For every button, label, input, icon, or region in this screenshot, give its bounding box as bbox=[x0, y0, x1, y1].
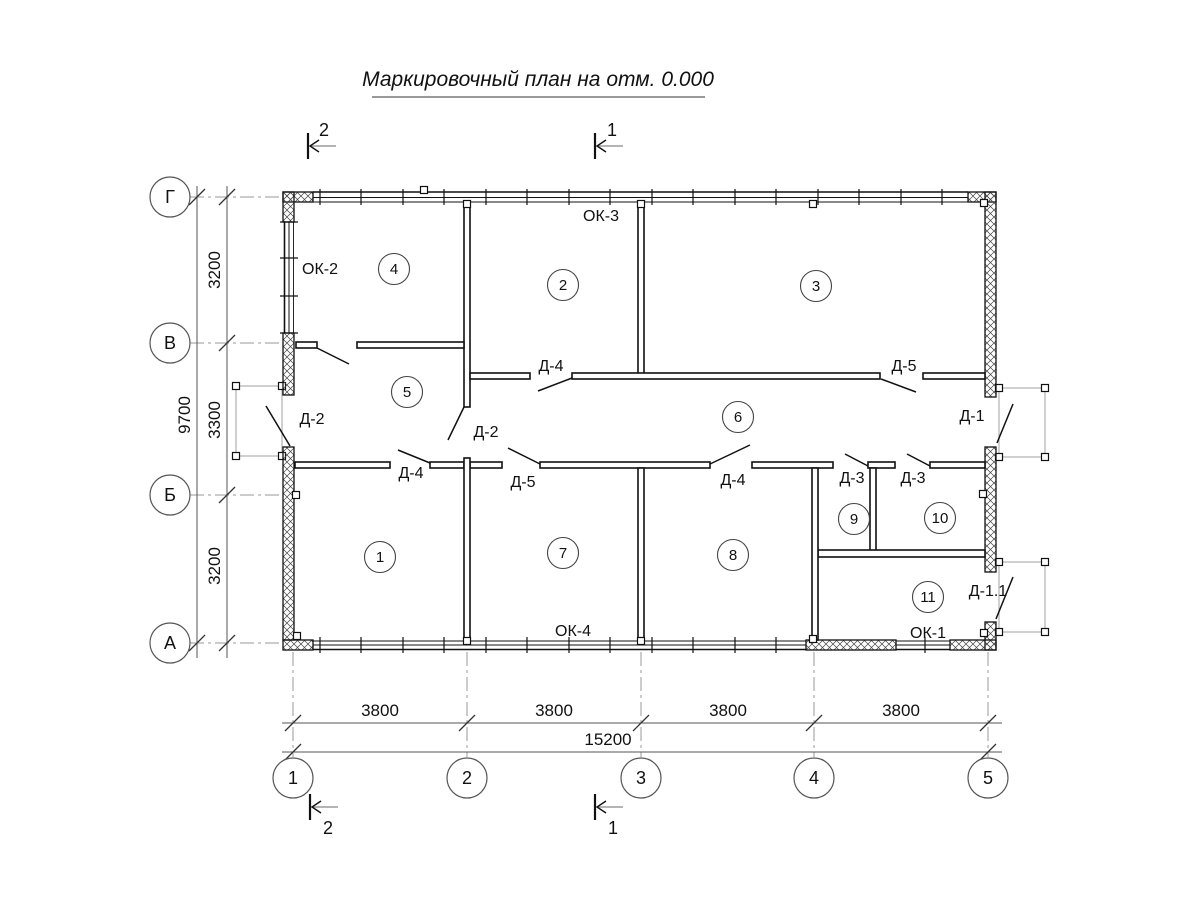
wall-right-mid bbox=[985, 447, 996, 572]
section-mark-2-bottom: 2 bbox=[310, 794, 338, 838]
section-label-1-bottom: 1 bbox=[608, 818, 618, 838]
window-label-ok1: ОК-1 bbox=[910, 625, 946, 642]
room-number-5: 5 bbox=[403, 384, 411, 401]
window-label-ok3: ОК-3 bbox=[583, 208, 619, 225]
door-leaf-d4-room8 bbox=[710, 445, 750, 464]
room-number-10: 10 bbox=[932, 510, 949, 527]
dim-row-span-3: 3200 bbox=[205, 547, 224, 585]
axis-grid-lines bbox=[190, 197, 988, 757]
door-label-d4-room8: Д-4 bbox=[720, 472, 745, 489]
wall-rooms-7-8 bbox=[638, 468, 644, 640]
porch-right-upper bbox=[996, 385, 1049, 461]
window-label-ok4: ОК-4 bbox=[555, 623, 591, 640]
door-label-d5-room7: Д-5 bbox=[510, 474, 535, 491]
door-label-d3-room9: Д-3 bbox=[839, 470, 864, 487]
wall-corner-bottom-left bbox=[283, 640, 313, 650]
room-number-8: 8 bbox=[729, 547, 737, 564]
wall-bottom-solid-1 bbox=[806, 640, 896, 650]
room-number-6: 6 bbox=[734, 409, 742, 426]
axis-col-3-label: 3 bbox=[636, 768, 646, 788]
wall-corridor-upper-3 bbox=[923, 373, 985, 379]
axis-row-b-label: Б bbox=[164, 485, 176, 505]
wall-bottom-solid-2 bbox=[950, 640, 996, 650]
room-number-7: 7 bbox=[559, 545, 567, 562]
axis-row-a-label: А bbox=[164, 633, 176, 653]
section-mark-1-top: 1 bbox=[595, 120, 623, 159]
wall-corridor-upper-1 bbox=[470, 373, 530, 379]
dim-row-total: 9700 bbox=[175, 396, 194, 434]
wall-rooms-4-5-stub bbox=[296, 342, 317, 348]
door-leaf-d5-room3 bbox=[881, 379, 916, 392]
door-label-d4-room1: Д-4 bbox=[398, 465, 423, 482]
room-3: 3 bbox=[801, 271, 832, 302]
room-9: 9 bbox=[839, 504, 870, 535]
axis-col-4-label: 4 bbox=[809, 768, 819, 788]
door-leaf-d2-interior bbox=[448, 407, 464, 440]
wall-corridor-lower-5 bbox=[752, 462, 833, 468]
door-label-d2-interior: Д-2 bbox=[473, 424, 498, 441]
wall-corridor-upper-2 bbox=[572, 373, 880, 379]
room-8: 8 bbox=[718, 540, 749, 571]
dim-row-span-1: 3200 bbox=[205, 251, 224, 289]
wall-corner-top-left-v bbox=[283, 192, 294, 222]
door-leaf-d2-porch bbox=[266, 406, 290, 446]
door-label-d3-room10: Д-3 bbox=[900, 470, 925, 487]
wall-corridor-lower-3 bbox=[470, 462, 502, 468]
door-label-d1-1: Д-1.1 bbox=[969, 583, 1008, 600]
axis-row-v-label: В bbox=[164, 333, 176, 353]
wall-corridor-lower-6 bbox=[868, 462, 895, 468]
room-11: 11 bbox=[913, 582, 944, 613]
wall-rooms-1-7 bbox=[464, 458, 470, 640]
door-label-d1: Д-1 bbox=[959, 408, 984, 425]
room-10: 10 bbox=[925, 503, 956, 534]
axis-col-1: 1 bbox=[273, 758, 313, 798]
axis-row-g: Г bbox=[150, 177, 190, 217]
window-band-left bbox=[280, 222, 298, 333]
wall-rooms-9-10 bbox=[870, 468, 876, 552]
room-number-4: 4 bbox=[390, 261, 398, 278]
section-label-2-bottom: 2 bbox=[323, 818, 333, 838]
floor-plan-canvas: Маркировочный план на отм. 0.000 2 1 bbox=[0, 0, 1200, 900]
axis-col-3: 3 bbox=[621, 758, 661, 798]
axis-row-b: Б bbox=[150, 475, 190, 515]
dim-col-span-3: 3800 bbox=[709, 701, 747, 720]
dim-col-total: 15200 bbox=[584, 730, 631, 749]
door-leaf-room4 bbox=[317, 348, 349, 364]
room-4: 4 bbox=[379, 254, 410, 285]
door-label-d5-room3: Д-5 bbox=[891, 358, 916, 375]
axis-row-v: В bbox=[150, 323, 190, 363]
wall-rooms-4-2 bbox=[464, 203, 470, 407]
section-mark-2-top: 2 bbox=[308, 120, 336, 159]
door-leaf-d3-room10 bbox=[907, 454, 930, 466]
wall-corridor-lower-4 bbox=[540, 462, 710, 468]
room-1: 1 bbox=[365, 542, 396, 573]
porch-left bbox=[233, 383, 286, 460]
section-marks-bottom: 2 1 bbox=[310, 794, 623, 838]
wall-rooms-8-9-11 bbox=[812, 468, 818, 640]
window-label-ok2: ОК-2 bbox=[302, 261, 338, 278]
room-number-11: 11 bbox=[920, 589, 936, 606]
door-leaf-d5-room7 bbox=[508, 448, 540, 464]
wall-corridor-lower-2 bbox=[430, 462, 464, 468]
room-5: 5 bbox=[392, 377, 423, 408]
drawing-title: Маркировочный план на отм. 0.000 bbox=[362, 68, 714, 91]
axis-col-2: 2 bbox=[447, 758, 487, 798]
room-number-1: 1 bbox=[376, 549, 384, 566]
room-number-3: 3 bbox=[812, 278, 820, 295]
section-mark-1-bottom: 1 bbox=[595, 794, 623, 838]
room-number-9: 9 bbox=[850, 511, 858, 528]
room-labels: 1 2 3 4 5 6 7 8 9 10 11 bbox=[365, 254, 956, 613]
door-label-d4-room2: Д-4 bbox=[538, 358, 563, 375]
section-label-2-top: 2 bbox=[319, 120, 329, 140]
wall-rooms-10-11 bbox=[818, 550, 985, 557]
wall-left-lower bbox=[283, 447, 294, 640]
axis-col-5: 5 bbox=[968, 758, 1008, 798]
wall-right-upper bbox=[985, 192, 996, 397]
wall-rooms-2-3 bbox=[638, 203, 644, 375]
dim-col-span-4: 3800 bbox=[882, 701, 920, 720]
room-6: 6 bbox=[723, 402, 754, 433]
axis-row-a: А bbox=[150, 623, 190, 663]
room-number-2: 2 bbox=[559, 277, 567, 294]
section-marks-top: 2 1 bbox=[308, 120, 623, 159]
axis-row-g-label: Г bbox=[165, 187, 175, 207]
wall-rooms-4-5 bbox=[357, 342, 464, 348]
door-leaf-d4-room2 bbox=[538, 378, 572, 391]
door-leaf-d3-room9 bbox=[845, 454, 868, 466]
axis-col-4: 4 bbox=[794, 758, 834, 798]
wall-corridor-lower-7 bbox=[930, 462, 985, 468]
door-leaf-d4-room1 bbox=[398, 450, 430, 463]
dim-col-span-1: 3800 bbox=[361, 701, 399, 720]
section-label-1-top: 1 bbox=[607, 120, 617, 140]
title-block: Маркировочный план на отм. 0.000 bbox=[362, 68, 714, 97]
axis-circles-bottom: 1 2 3 4 5 bbox=[273, 758, 1008, 798]
room-2: 2 bbox=[548, 270, 579, 301]
drawing-sheet: Маркировочный план на отм. 0.000 2 1 bbox=[0, 0, 1200, 900]
axis-col-1-label: 1 bbox=[288, 768, 298, 788]
wall-corridor-lower-1 bbox=[295, 462, 390, 468]
dim-col-span-2: 3800 bbox=[535, 701, 573, 720]
door-label-d2-porch: Д-2 bbox=[299, 411, 324, 428]
room-7: 7 bbox=[548, 538, 579, 569]
wall-left-mid bbox=[283, 333, 294, 395]
dim-row-span-2: 3300 bbox=[205, 401, 224, 439]
axis-col-5-label: 5 bbox=[983, 768, 993, 788]
axis-col-2-label: 2 bbox=[462, 768, 472, 788]
